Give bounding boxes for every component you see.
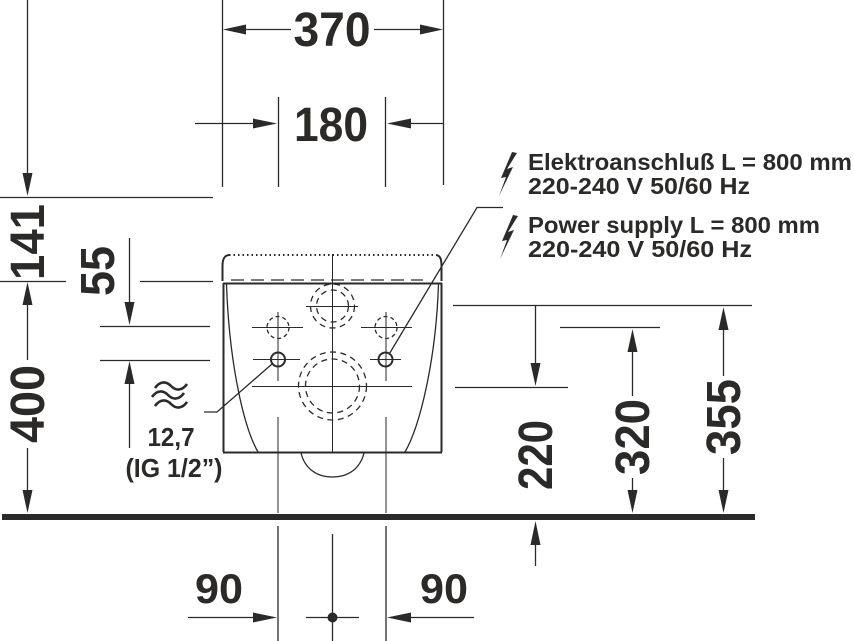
dim-supply-height: 355 (698, 307, 751, 513)
floor-line (2, 514, 755, 520)
technical-drawing-canvas: 370 180 141 400 55 (0, 0, 854, 641)
bowl-taper-left (227, 284, 259, 452)
water-annotation: 12,7 (IG 1/2”) (126, 382, 223, 483)
arrow-down-icon (628, 490, 638, 513)
label-90-left: 90 (195, 565, 243, 612)
arrow-down-icon (125, 302, 135, 325)
arrow-down-icon (23, 173, 33, 196)
bowl-taper-right (405, 284, 439, 452)
arrow-right-icon (253, 613, 277, 623)
arrow-left-icon (223, 25, 246, 35)
water-wave-icon (152, 382, 187, 407)
label-180: 180 (294, 99, 368, 152)
arrow-down-icon (719, 490, 729, 513)
wave-stroke (155, 382, 187, 389)
arrow-up-icon (719, 307, 729, 330)
label-90-right: 90 (420, 565, 468, 612)
arrow-up-icon (23, 282, 33, 305)
label-400: 400 (2, 365, 55, 443)
arrow-left-icon (253, 119, 277, 129)
label-220: 220 (510, 420, 563, 490)
label-141: 141 (2, 204, 55, 280)
toilet-rear-dimension-drawing: 370 180 141 400 55 (0, 0, 854, 641)
arrow-down-icon (531, 363, 541, 386)
outlet-bulge-arc (301, 453, 364, 477)
dim-fixing-spacing: 180 (195, 97, 443, 187)
arrow-up-icon (125, 361, 135, 384)
arrow-left-icon (387, 613, 411, 623)
lightning-bolt-icon (500, 215, 518, 259)
arrow-right-icon (420, 25, 443, 35)
arrow-up-floor-icon (531, 521, 541, 545)
dim-hole-row-gap: 55 (72, 238, 135, 448)
dim-bottom-offsets: 90 90 (188, 526, 474, 641)
electrical-annotation: Elektroanschluß L = 800 mm 220-240 V 50/… (499, 149, 852, 262)
label-water-thread: (IG 1/2”) (126, 453, 223, 483)
label-electrical-de-2: 220-240 V 50/60 Hz (528, 173, 750, 199)
label-electrical-de-1: Elektroanschluß L = 800 mm (528, 149, 852, 175)
leader-line-power (390, 208, 504, 354)
label-electrical-en-1: Power supply L = 800 mm (528, 212, 820, 238)
dim-outlet-height: 220 (510, 306, 563, 566)
label-370: 370 (294, 4, 371, 57)
lightning-bolt-icon (499, 152, 517, 196)
dim-top-edge-drop-and-height: 141 400 (2, 0, 55, 513)
label-electrical-en-2: 220-240 V 50/60 Hz (528, 236, 752, 262)
label-320: 320 (607, 399, 660, 475)
wave-stroke (155, 400, 187, 407)
toilet-body (223, 254, 443, 513)
arrow-up-icon (628, 329, 638, 352)
label-water-size: 12,7 (148, 422, 195, 452)
label-55: 55 (72, 246, 125, 296)
dim-fixing-height: 320 (607, 329, 660, 513)
label-355: 355 (698, 379, 751, 455)
right-reference-lines (453, 306, 752, 388)
arrow-down-floor-icon (23, 490, 33, 513)
arrow-right-icon (387, 119, 411, 129)
lid-left-corner (223, 255, 230, 281)
dim-overall-width: 370 (223, 0, 444, 187)
wave-stroke (152, 391, 184, 398)
